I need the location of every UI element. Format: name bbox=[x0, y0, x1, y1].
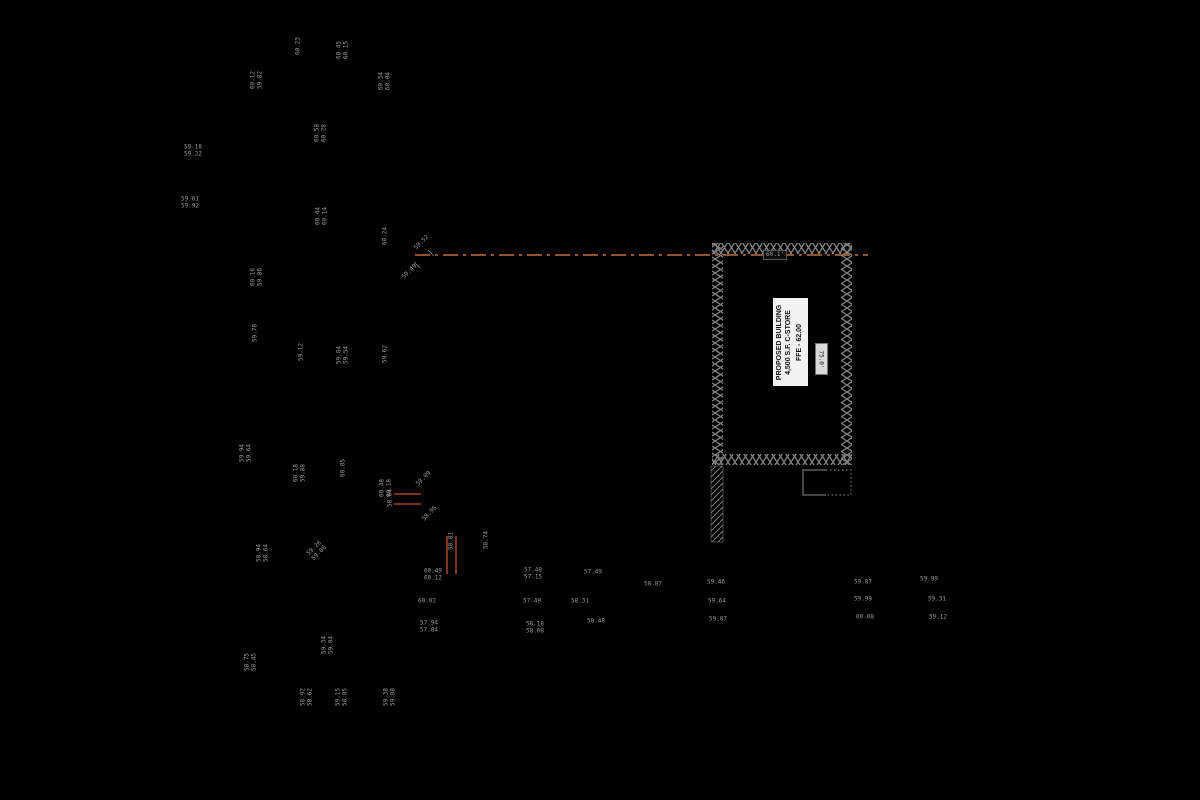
pad-solid-edge bbox=[803, 470, 826, 495]
spot-elevation-label: 59.6159.92 bbox=[181, 196, 199, 209]
spot-elevation-label: 59.12 bbox=[929, 615, 947, 622]
spot-elevation-label: 59.62 bbox=[383, 345, 390, 363]
spot-elevation-label: 60.5860.28 bbox=[314, 124, 327, 142]
spot-elevation-label: 60.02 bbox=[418, 599, 436, 606]
spot-elevation-label: 59.8459.54 bbox=[336, 346, 349, 364]
building-ffe-label: FFE - 62.00 bbox=[796, 324, 804, 361]
spot-elevation-label: 60.23 bbox=[296, 37, 303, 55]
spot-elevation-label: 59.99 bbox=[854, 597, 872, 604]
spot-elevation-label: 59.87 bbox=[854, 580, 872, 587]
spot-elevation-label: 59.78 bbox=[253, 324, 260, 342]
building-width-label: 60.1' bbox=[763, 250, 787, 260]
spot-elevation-label: 60.1659.86 bbox=[250, 268, 263, 286]
building-label-text: PROPOSED BUILDING 4,500 S.F. C-STORE FFE… bbox=[773, 304, 808, 379]
spot-elevation-label: 58.7558.45 bbox=[244, 653, 257, 671]
spot-elevation-label: 59.1859.22 bbox=[184, 144, 202, 157]
siteplan-linework bbox=[0, 0, 1200, 800]
spot-elevation-label: 58.87 bbox=[644, 582, 662, 589]
spot-elevation-label: 57.9457.84 bbox=[420, 620, 438, 633]
building-depth-label: 75.0' bbox=[815, 343, 828, 375]
spot-elevation-label: 60.1859.88 bbox=[293, 464, 306, 482]
spot-elevation-label: 60.08 bbox=[856, 615, 874, 622]
spot-elevation-label: 58.81 bbox=[449, 532, 456, 550]
pad-dotted-edge bbox=[826, 470, 851, 495]
building-depth-text: 75.0' bbox=[818, 350, 825, 368]
spot-elevation-label: 60.05 bbox=[341, 459, 348, 477]
siteplan-canvas: PROPOSED BUILDING 4,500 S.F. C-STORE FFE… bbox=[0, 0, 1200, 800]
building-label-line1: PROPOSED BUILDING bbox=[776, 304, 784, 379]
spot-elevation-label: 60.4960.12 bbox=[424, 568, 442, 581]
building-label-box: PROPOSED BUILDING 4,500 S.F. C-STORE FFE… bbox=[772, 297, 809, 387]
building-wall-bottom bbox=[712, 454, 852, 465]
spot-elevation-label: 58.1858.08 bbox=[526, 621, 544, 634]
spot-elevation-label: 59.31 bbox=[928, 597, 946, 604]
spot-elevation-label: 59.3459.04 bbox=[321, 636, 334, 654]
spot-elevation-label: 60.24 bbox=[383, 227, 390, 245]
building-label-line2: 4,500 S.F. C-STORE bbox=[785, 310, 793, 375]
spot-elevation-label: 59.87 bbox=[709, 617, 727, 624]
spot-elevation-label: 60.4460.14 bbox=[315, 207, 328, 225]
spot-elevation-label: 58.64 bbox=[388, 489, 395, 507]
pad-outline bbox=[803, 470, 851, 495]
spot-elevation-label: 57.49 bbox=[523, 599, 541, 606]
spot-elevation-label: 58.9258.62 bbox=[300, 688, 313, 706]
spot-elevation-label: 58.31 bbox=[571, 599, 589, 606]
building-wall-right bbox=[841, 243, 852, 465]
spot-elevation-label: 59.99 bbox=[920, 577, 938, 584]
spot-elevation-label: 59.9459.64 bbox=[239, 444, 252, 462]
spot-elevation-label: 58.48 bbox=[587, 619, 605, 626]
spot-elevation-label: 59.12 bbox=[299, 343, 306, 361]
spot-elevation-label: 59.46 bbox=[707, 580, 725, 587]
spot-elevation-label: 59.1558.85 bbox=[335, 688, 348, 706]
spot-elevation-label: 58.9458.64 bbox=[256, 544, 269, 562]
revision-marks bbox=[394, 494, 456, 574]
spot-elevation-label: 57.49 bbox=[584, 570, 602, 577]
spot-elevation-label: 60.4560.15 bbox=[336, 41, 349, 59]
sidewalk-hatch bbox=[711, 466, 723, 542]
spot-elevation-label: 59.3859.08 bbox=[383, 688, 396, 706]
spot-elevation-label: 60.1259.82 bbox=[250, 71, 263, 89]
building-wall-left bbox=[712, 243, 723, 465]
spot-elevation-label: 57.4857.15 bbox=[524, 567, 542, 580]
spot-elevation-label: 60.3460.04 bbox=[378, 72, 391, 90]
spot-elevation-label: 59.64 bbox=[708, 599, 726, 606]
spot-elevation-label: 58.74 bbox=[484, 531, 491, 549]
